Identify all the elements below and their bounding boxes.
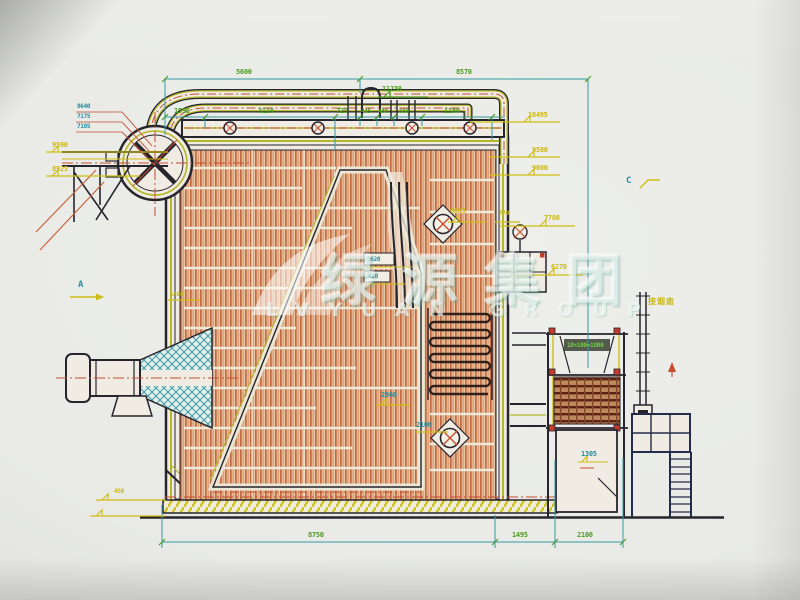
access-platform-ladder xyxy=(632,414,691,517)
dimension-label: 1495 xyxy=(512,531,528,539)
drawing-sheet: 5600 8570 1590 3110 725 445 480 680 1180… xyxy=(0,0,800,600)
elevation-label: 8925 xyxy=(52,165,68,173)
section-marker-a: A xyxy=(78,280,83,290)
dimension-label: 1180 xyxy=(444,107,460,115)
elevation-label: 11230 xyxy=(382,85,402,93)
dimension-label: 2100 xyxy=(577,531,593,539)
elevation-label: 9080 xyxy=(532,164,548,172)
ash-hopper xyxy=(556,430,617,512)
flue-duct xyxy=(510,333,546,426)
dimension-label: 8750 xyxy=(308,531,324,539)
elevation-label: 1305 xyxy=(581,450,597,458)
dimension-label: 725 xyxy=(336,107,348,115)
elevation-label: 7105 xyxy=(77,123,90,130)
burner xyxy=(56,328,240,428)
superheater-coil xyxy=(428,308,492,400)
elevation-label: 10495 xyxy=(528,111,548,119)
elevation-label: 9580 xyxy=(532,146,548,154)
dimension-label: 3110 xyxy=(258,107,274,115)
elevation-label: 450 xyxy=(114,488,124,495)
foundation xyxy=(140,500,724,518)
section-marker-c: C xyxy=(626,176,631,186)
elevation-label: 8640 xyxy=(77,103,90,110)
dimension-label: 1590 xyxy=(174,107,190,115)
steam-header xyxy=(182,120,504,137)
economizer-tube-count-label: 18×100=1800 xyxy=(567,342,603,349)
elevation-label: 8603 xyxy=(450,207,466,215)
elevation-label: 2108 xyxy=(416,421,432,429)
dimension-label: 8570 xyxy=(456,68,472,76)
dimension-label: 5600 xyxy=(236,68,252,76)
elevation-label: 7708 xyxy=(544,214,560,222)
elevation-label: 9590 xyxy=(52,141,68,149)
elevation-label: 1480 xyxy=(170,291,183,298)
elevation-label: 770 xyxy=(499,210,509,217)
elevation-label: 2960 xyxy=(381,391,397,399)
dimension-label: 680 xyxy=(399,108,409,115)
dimension-label: 445 xyxy=(361,108,371,115)
watermark-en-text: LVYUAN GROUP xyxy=(266,299,660,321)
photographed-boiler-drawing: 5600 8570 1590 3110 725 445 480 680 1180… xyxy=(0,0,800,600)
elevation-label: 7175 xyxy=(77,113,90,120)
dimension-label: 480 xyxy=(378,108,388,115)
